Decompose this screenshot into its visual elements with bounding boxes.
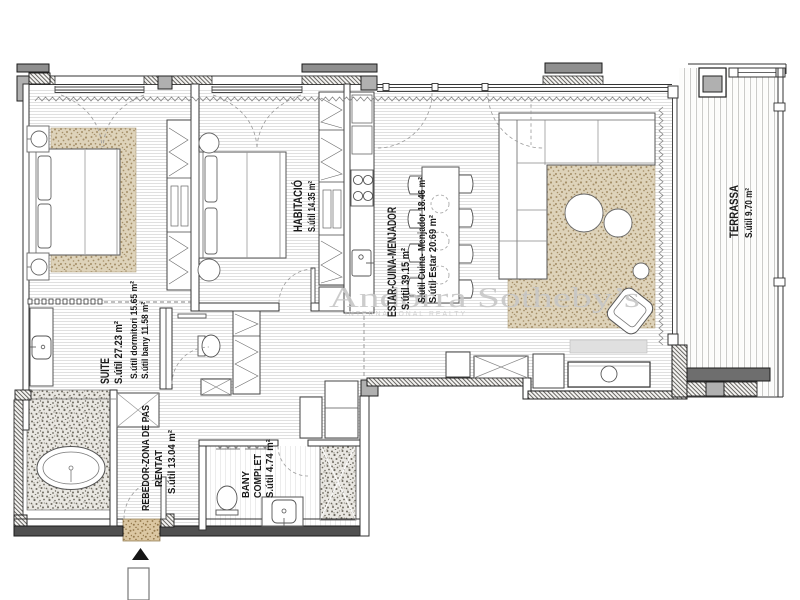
svg-text:S.útil 14.35 m²: S.útil 14.35 m² (306, 181, 318, 232)
svg-text:S.útil 27.23 m²: S.útil 27.23 m² (113, 321, 125, 384)
svg-text:S.útil bany 11.58 m²: S.útil bany 11.58 m² (140, 302, 151, 379)
svg-text:BANY: BANY (240, 471, 252, 498)
svg-text:S.útil 39.15 m²: S.útil 39.15 m² (400, 248, 412, 310)
svg-text:RENTAT: RENTAT (153, 449, 165, 487)
svg-text:REBEDOR-ZONA DE PAS: REBEDOR-ZONA DE PAS (140, 405, 152, 511)
svg-text:HABITACIÓ: HABITACIÓ (292, 180, 305, 232)
svg-text:S.útil dormitori 15.65 m²: S.útil dormitori 15.65 m² (129, 281, 140, 379)
svg-text:S.útil 13.04 m²: S.útil 13.04 m² (166, 430, 178, 494)
svg-text:ESTAR-CUINA-MENJADOR: ESTAR-CUINA-MENJADOR (387, 206, 399, 317)
svg-text:COMPLET: COMPLET (252, 454, 264, 498)
svg-text:SUITE: SUITE (98, 358, 112, 384)
svg-text:S.útil Cuina- Menjador 18.46 m: S.útil Cuina- Menjador 18.46 m² (417, 176, 428, 303)
svg-text:TERRASSA: TERRASSA (729, 185, 741, 238)
svg-text:S.útil Estar 20.69 m²: S.útil Estar 20.69 m² (428, 214, 439, 303)
svg-text:S.útil 9.70 m²: S.útil 9.70 m² (743, 188, 755, 238)
svg-text:S.útil 4.74 m²: S.útil 4.74 m² (264, 439, 276, 498)
